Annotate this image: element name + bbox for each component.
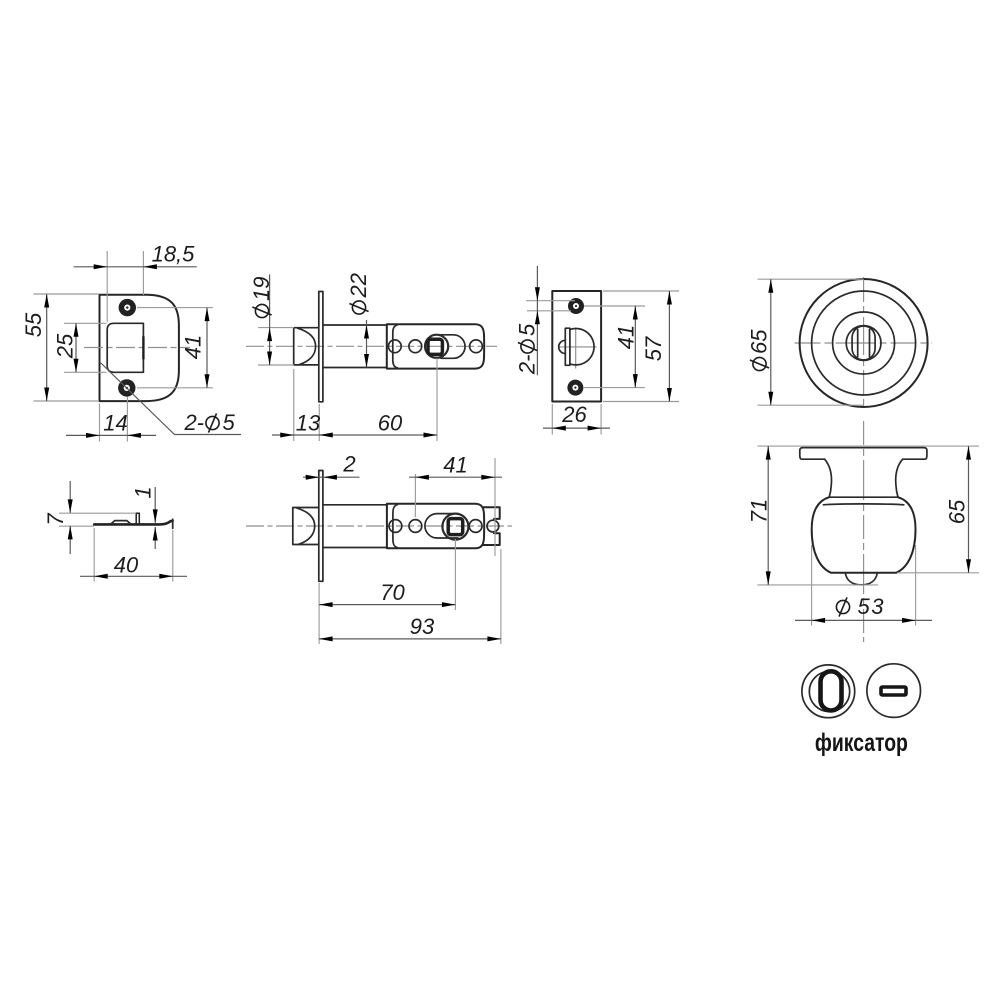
svg-text:18,5: 18,5 (152, 242, 196, 267)
svg-text:22: 22 (346, 273, 371, 298)
svg-text:5: 5 (223, 410, 236, 435)
svg-text:57: 57 (641, 336, 666, 361)
svg-text:41: 41 (181, 335, 206, 359)
svg-text:25: 25 (53, 333, 78, 359)
svg-text:7: 7 (43, 513, 68, 526)
svg-text:65: 65 (945, 499, 970, 524)
svg-text:65: 65 (747, 329, 772, 354)
svg-text:фиксатор: фиксатор (815, 729, 908, 757)
svg-text:2-: 2- (183, 410, 204, 435)
svg-text:41: 41 (443, 453, 467, 478)
svg-text:14: 14 (103, 411, 127, 436)
svg-text:13: 13 (296, 411, 321, 436)
svg-text:40: 40 (114, 553, 139, 578)
svg-text:2-: 2- (515, 355, 540, 376)
svg-text:5: 5 (515, 323, 540, 336)
svg-text:55: 55 (21, 312, 46, 337)
svg-text:41: 41 (614, 325, 639, 349)
svg-text:60: 60 (378, 411, 403, 436)
svg-text:93: 93 (410, 614, 435, 639)
svg-text:2: 2 (342, 452, 355, 477)
svg-text:70: 70 (380, 580, 405, 605)
svg-text:53: 53 (858, 594, 885, 619)
svg-text:26: 26 (561, 402, 587, 427)
svg-text:1: 1 (131, 486, 156, 498)
svg-text:71: 71 (747, 499, 772, 523)
svg-text:19: 19 (249, 277, 274, 301)
